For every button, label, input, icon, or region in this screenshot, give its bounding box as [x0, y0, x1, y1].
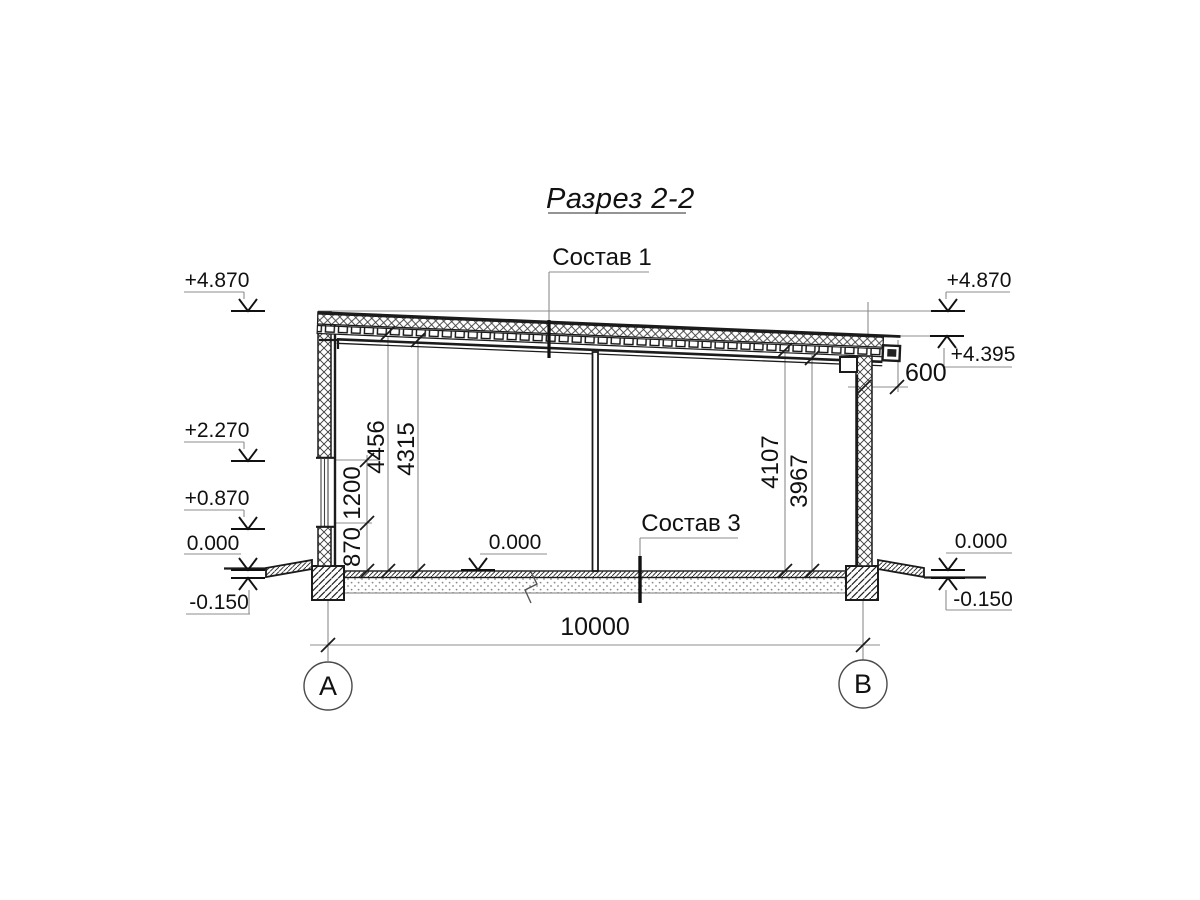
drawing-linework — [0, 0, 1200, 900]
level-right-ground: -0.150 — [950, 589, 1016, 610]
level-right-top: +4.870 — [946, 270, 1012, 291]
left-wall-masonry — [318, 312, 331, 566]
floor-bedding-layer — [344, 577, 848, 593]
level-arrow-down — [231, 449, 265, 461]
level-left-top: +4.870 — [184, 270, 250, 291]
floor-layers-label: Состав 3 — [641, 512, 741, 536]
foundation-left — [312, 566, 344, 600]
left-wall — [316, 312, 336, 566]
axis-label-a: А — [304, 673, 352, 700]
apron-left — [266, 560, 312, 577]
roof-assembly — [317, 312, 901, 366]
level-left-ground: -0.150 — [186, 592, 252, 613]
level-arrow-down — [931, 299, 965, 311]
level-arrow-down — [461, 558, 495, 570]
drawing-title: Разрез 2-2 — [546, 185, 686, 214]
level-arrow-up — [231, 578, 265, 590]
level-arrow-down — [931, 558, 965, 570]
apron-right — [878, 560, 924, 577]
level-arrow-down — [231, 517, 265, 529]
right-wall — [840, 356, 872, 566]
level-arrow-down — [231, 299, 265, 311]
fascia-insert — [887, 349, 896, 357]
level-left-mid: +2.270 — [184, 420, 250, 441]
floor-screed-layer — [331, 571, 856, 578]
level-floor-zero: 0.000 — [482, 532, 548, 553]
dim-total-width: 10000 — [540, 615, 650, 640]
foundation-right — [846, 566, 878, 600]
center-column — [593, 352, 599, 571]
beam-seat — [840, 357, 857, 372]
dim-overhang: 600 — [905, 361, 947, 386]
level-left-zero: 0.000 — [180, 533, 246, 554]
level-left-low: +0.870 — [184, 488, 250, 509]
section-drawing-2-2: Разрез 2-2 Состав 1 Состав 3 +4.870 +2.2… — [0, 0, 1200, 900]
dim-sill-height: 870 — [341, 487, 365, 607]
axis-label-b: В — [839, 671, 887, 698]
dim-height-4456: 4456 — [365, 387, 389, 507]
level-right-zero: 0.000 — [948, 531, 1014, 552]
level-right-eave: +4.395 — [950, 344, 1016, 365]
floor-slab — [331, 571, 856, 593]
dim-height-4107: 4107 — [759, 402, 783, 522]
roof-layers-label: Состав 1 — [552, 246, 652, 270]
dim-height-4315: 4315 — [395, 389, 419, 509]
dim-height-3967: 3967 — [788, 421, 812, 541]
